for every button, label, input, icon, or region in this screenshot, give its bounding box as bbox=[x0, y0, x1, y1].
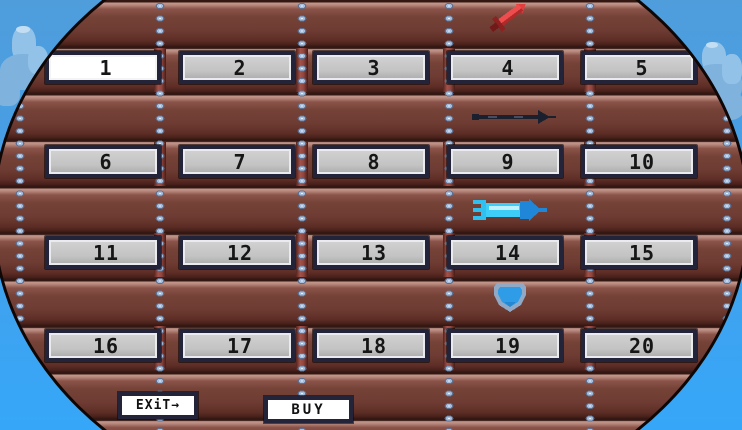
level-button-3[interactable]: 3 bbox=[313, 51, 429, 84]
level-button-14[interactable]: 14 bbox=[447, 236, 563, 269]
level-button-4[interactable]: 4 bbox=[447, 51, 563, 84]
level-button-1[interactable]: 1 bbox=[45, 51, 161, 84]
level-button-9[interactable]: 9 bbox=[447, 145, 563, 178]
level-button-19[interactable]: 19 bbox=[447, 329, 563, 362]
level-button-8[interactable]: 8 bbox=[313, 145, 429, 178]
level-button-18[interactable]: 18 bbox=[313, 329, 429, 362]
sword-icon bbox=[486, 2, 530, 32]
level-button-2[interactable]: 2 bbox=[179, 51, 295, 84]
level-button-5[interactable]: 5 bbox=[581, 51, 697, 84]
level-button-15[interactable]: 15 bbox=[581, 236, 697, 269]
level-button-13[interactable]: 13 bbox=[313, 236, 429, 269]
level-button-11[interactable]: 11 bbox=[45, 236, 161, 269]
shield-icon bbox=[492, 282, 528, 313]
level-button-12[interactable]: 12 bbox=[179, 236, 295, 269]
game-screen: 1 2 3 4 5 6 7 8 9 10 11 12 13 14 15 16 1… bbox=[0, 0, 742, 430]
wooden-board: 1 2 3 4 5 6 7 8 9 10 11 12 13 14 15 16 1… bbox=[0, 0, 742, 430]
exit-button[interactable]: EXiT→ bbox=[118, 392, 198, 419]
level-button-10[interactable]: 10 bbox=[581, 145, 697, 178]
level-button-20[interactable]: 20 bbox=[581, 329, 697, 362]
rocket-icon bbox=[473, 198, 547, 222]
board-planks: 1 2 3 4 5 6 7 8 9 10 11 12 13 14 15 16 1… bbox=[0, 0, 742, 430]
level-button-16[interactable]: 16 bbox=[45, 329, 161, 362]
rivet-column bbox=[296, 0, 308, 430]
rivet-column bbox=[14, 0, 26, 430]
level-button-7[interactable]: 7 bbox=[179, 145, 295, 178]
spear-icon bbox=[472, 108, 556, 126]
level-button-6[interactable]: 6 bbox=[45, 145, 161, 178]
level-button-17[interactable]: 17 bbox=[179, 329, 295, 362]
buy-button[interactable]: BUY bbox=[264, 396, 353, 423]
rivet-column bbox=[721, 0, 733, 430]
